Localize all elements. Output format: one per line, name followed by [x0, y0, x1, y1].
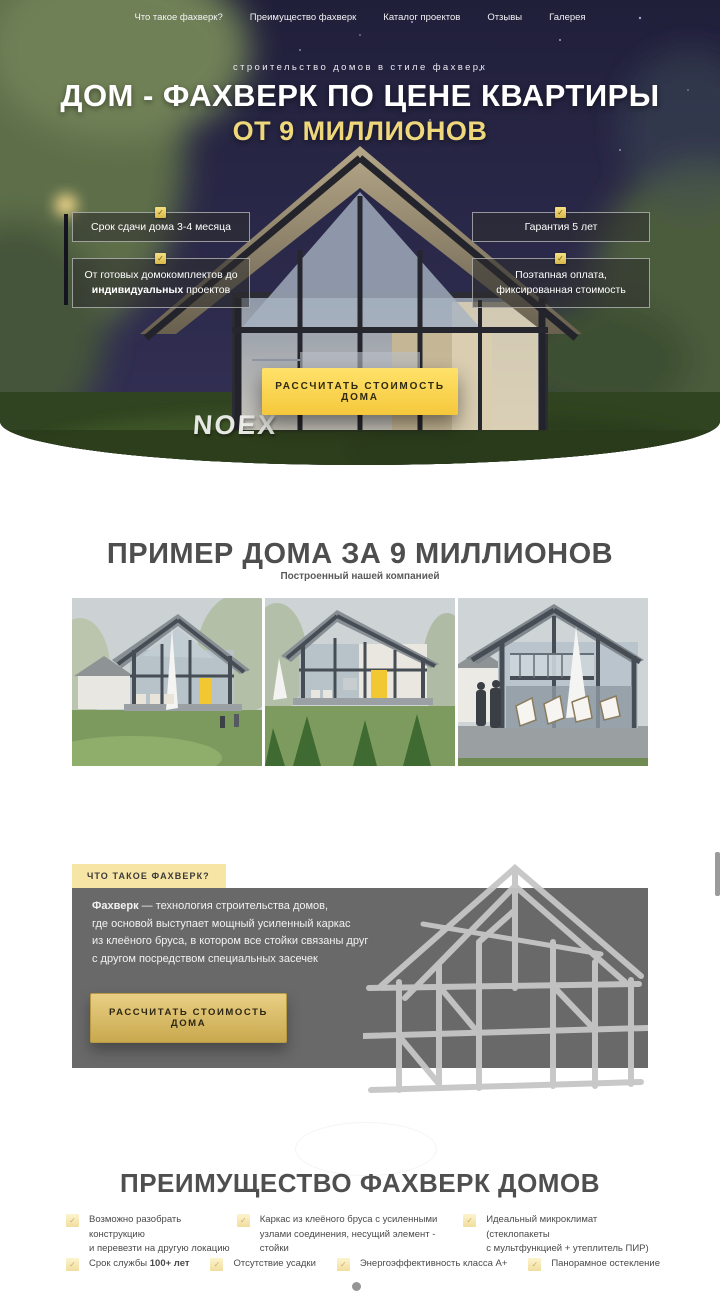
hero-section: Что такое фахверк? Преимущество фахверк …	[0, 0, 720, 465]
example-section-title: ПРИМЕР ДОМА ЗА 9 МИЛЛИОНОВ	[0, 538, 720, 571]
advantage-energy-efficiency: ✓ Энергоэффективность класса А+	[337, 1257, 508, 1272]
nav-item-what-is-fachwerk[interactable]: Что такое фахверк?	[134, 12, 222, 23]
scrollbar-thumb[interactable]	[715, 852, 720, 896]
timber-frame-sketch	[363, 858, 648, 1096]
about-paragraph: Фахверк — технология строительства домов…	[92, 898, 368, 968]
example-photo-side-view	[72, 598, 262, 766]
about-term: Фахверк	[92, 900, 139, 912]
example-section-subtitle: Построенный нашей компанией	[0, 571, 720, 582]
check-icon: ✓	[155, 207, 166, 218]
hero-price-line: ОТ 9 МИЛЛИОНОВ	[0, 116, 720, 147]
badge-warranty-label: Гарантия 5 лет	[525, 220, 598, 235]
advantage-panoramic-glazing: ✓ Панорамное остекление	[528, 1257, 660, 1272]
advantage-microclimate: ✓ Идеальный микроклимат (стеклопакеты с …	[463, 1213, 660, 1257]
badge-projects: ✓ От готовых домокомплектов доиндивидуал…	[72, 258, 250, 308]
nav-item-catalog[interactable]: Каталог проектов	[383, 12, 460, 23]
check-icon: ✓	[237, 1214, 250, 1227]
hero-tagline: строительство домов в стиле фахверк	[0, 62, 720, 73]
calculate-cost-button[interactable]: РАССЧИТАТЬ СТОИМОСТЬ ДОМА	[262, 368, 458, 415]
calculate-cost-button-secondary[interactable]: РАССЧИТАТЬ СТОИМОСТЬ ДОМА	[90, 993, 287, 1043]
advantages-row-2: ✓ Срок службы 100+ лет ✓ Отсутствие усад…	[66, 1257, 660, 1272]
hero-title: ДОМ - ФАХВЕРК ПО ЦЕНЕ КВАРТИРЫ	[0, 78, 720, 114]
example-photo-front-view	[265, 598, 455, 766]
badge-delivery-time: ✓ Срок сдачи дома 3-4 месяца	[72, 212, 250, 242]
about-section: Фахверк — технология строительства домов…	[72, 888, 648, 1068]
badge-projects-label: От готовых домокомплектов доиндивидуальн…	[84, 268, 237, 298]
check-icon: ✓	[66, 1214, 79, 1227]
check-icon: ✓	[528, 1258, 541, 1271]
advantages-title: ПРЕИМУЩЕСТВО ФАХВЕРК ДОМОВ	[0, 1168, 720, 1199]
badge-delivery-label: Срок сдачи дома 3-4 месяца	[91, 220, 231, 235]
decorative-dot	[352, 1282, 361, 1291]
example-photo-terrace-view	[458, 598, 648, 766]
example-photos-row	[72, 598, 648, 766]
nav-item-reviews[interactable]: Отзывы	[487, 12, 522, 23]
advantages-row-1: ✓ Возможно разобрать конструкцию и перев…	[66, 1213, 660, 1257]
about-section-tab: ЧТО ТАКОЕ ФАХВЕРК?	[72, 864, 226, 888]
advantage-relocatable: ✓ Возможно разобрать конструкцию и перев…	[66, 1213, 237, 1257]
check-icon: ✓	[555, 253, 566, 264]
check-icon: ✓	[66, 1258, 79, 1271]
check-icon: ✓	[210, 1258, 223, 1271]
check-icon: ✓	[155, 253, 166, 264]
badge-warranty: ✓ Гарантия 5 лет	[472, 212, 650, 242]
check-icon: ✓	[555, 207, 566, 218]
check-icon: ✓	[463, 1214, 476, 1227]
badge-payment: ✓ Поэтапная оплата, фиксированная стоимо…	[472, 258, 650, 308]
nav-item-advantages[interactable]: Преимущество фахверк	[250, 12, 357, 23]
nav-item-gallery[interactable]: Галерея	[549, 12, 585, 23]
advantage-glued-beam-frame: ✓ Каркас из клеёного бруса с усиленными …	[237, 1213, 463, 1257]
advantage-no-shrinkage: ✓ Отсутствие усадки	[210, 1257, 315, 1272]
badge-payment-label: Поэтапная оплата, фиксированная стоимост…	[496, 268, 626, 298]
advantage-service-life: ✓ Срок службы 100+ лет	[66, 1257, 190, 1272]
check-icon: ✓	[337, 1258, 350, 1271]
top-navigation: Что такое фахверк? Преимущество фахверк …	[0, 0, 720, 34]
